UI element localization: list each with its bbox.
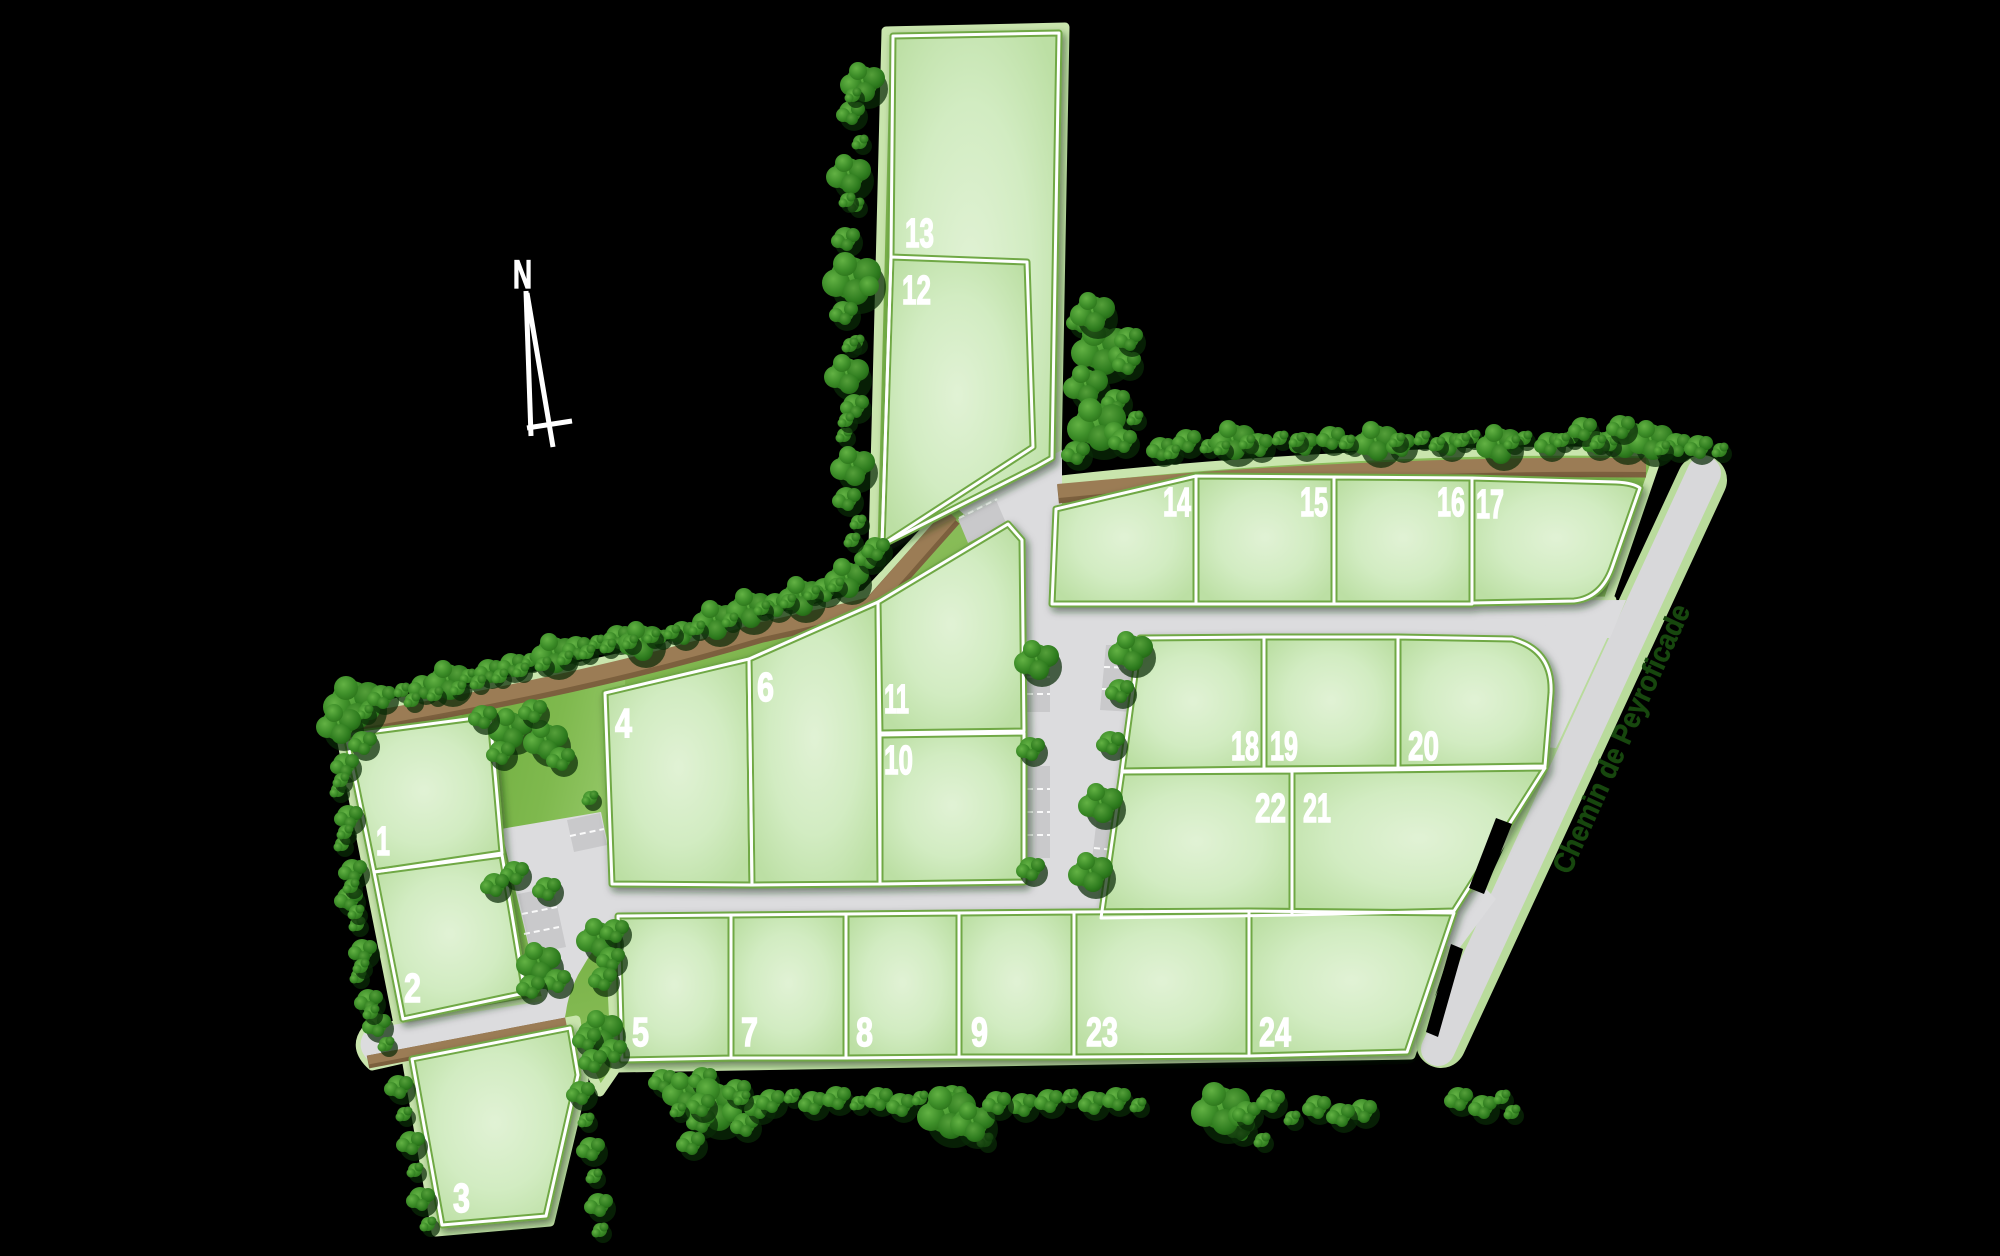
svg-text:11: 11 xyxy=(884,676,909,722)
svg-text:15: 15 xyxy=(1300,479,1328,525)
svg-text:20: 20 xyxy=(1408,723,1439,769)
svg-text:6: 6 xyxy=(757,664,774,710)
svg-text:5: 5 xyxy=(632,1009,649,1055)
svg-text:8: 8 xyxy=(856,1009,873,1055)
svg-text:18: 18 xyxy=(1231,723,1259,769)
svg-text:N: N xyxy=(513,253,532,297)
svg-text:1: 1 xyxy=(376,818,390,864)
svg-text:24: 24 xyxy=(1259,1009,1291,1055)
svg-text:13: 13 xyxy=(905,210,934,256)
svg-text:12: 12 xyxy=(902,267,931,313)
svg-text:2: 2 xyxy=(404,965,421,1011)
svg-text:4: 4 xyxy=(615,700,632,746)
svg-text:9: 9 xyxy=(971,1009,988,1055)
svg-text:17: 17 xyxy=(1476,481,1504,527)
svg-text:19: 19 xyxy=(1270,723,1298,769)
svg-text:22: 22 xyxy=(1255,785,1286,831)
svg-text:23: 23 xyxy=(1086,1009,1118,1055)
svg-text:3: 3 xyxy=(453,1175,470,1221)
svg-text:14: 14 xyxy=(1163,479,1191,525)
svg-text:16: 16 xyxy=(1437,479,1465,525)
svg-text:7: 7 xyxy=(741,1009,758,1055)
svg-text:10: 10 xyxy=(884,737,913,783)
svg-text:21: 21 xyxy=(1303,785,1331,831)
